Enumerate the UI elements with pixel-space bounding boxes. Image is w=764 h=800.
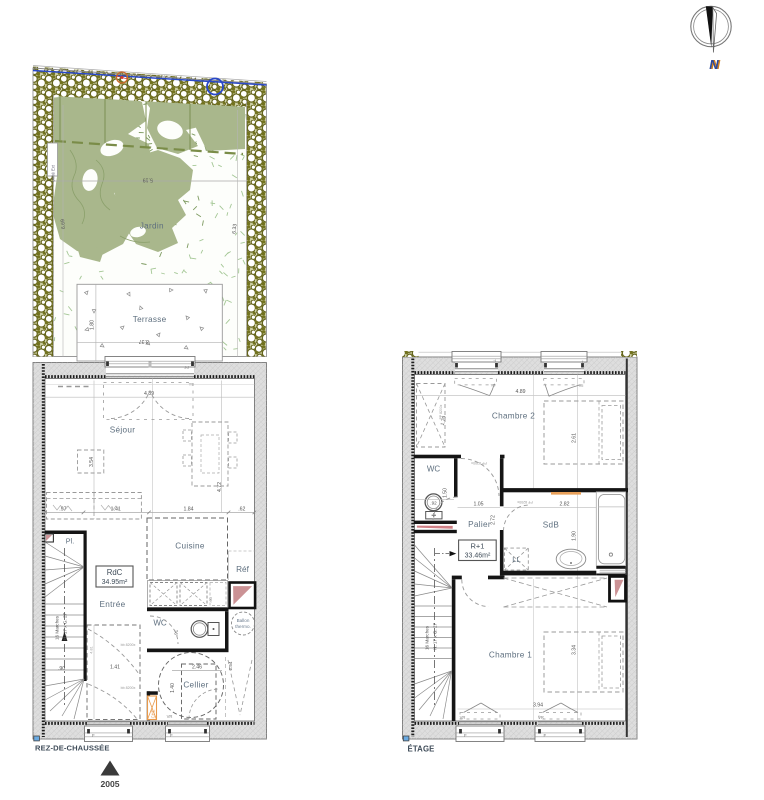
svg-text:Terrasse: Terrasse: [133, 315, 167, 324]
svg-text:6.69: 6.69: [60, 219, 67, 230]
svg-text:5.19: 5.19: [143, 177, 153, 183]
svg-text:1.80: 1.80: [90, 320, 96, 330]
svg-text:Entrée: Entrée: [100, 600, 126, 609]
svg-text:4.72: 4.72: [217, 482, 223, 492]
svg-text:thermo.: thermo.: [235, 624, 251, 629]
svg-text:WC: WC: [427, 465, 441, 474]
svg-text:2.46: 2.46: [192, 665, 202, 671]
svg-text:.90: .90: [58, 666, 65, 672]
svg-text:1.90: 1.90: [572, 531, 578, 541]
svg-text:ÉTAGE: ÉTAGE: [408, 745, 435, 754]
svg-text:1.40: 1.40: [170, 683, 176, 693]
svg-text:1.84: 1.84: [183, 507, 193, 513]
svg-text:PF: PF: [183, 365, 189, 370]
svg-text:Séjour: Séjour: [110, 426, 135, 435]
svg-text:2005: 2005: [100, 779, 119, 789]
svg-text:LL: LL: [512, 555, 520, 564]
svg-text:Palier: Palier: [468, 520, 491, 529]
svg-text:PP 8200x: PP 8200x: [471, 461, 487, 465]
svg-text:Cuisine: Cuisine: [175, 542, 205, 551]
svg-text:VR: VR: [167, 714, 173, 719]
svg-text:F: F: [464, 733, 467, 738]
svg-text:Pl.: Pl.: [66, 537, 74, 546]
svg-text:3.94: 3.94: [533, 703, 543, 709]
svg-text:Chambre 1: Chambre 1: [489, 651, 532, 660]
svg-text:1.41: 1.41: [110, 665, 120, 671]
svg-text:F: F: [170, 733, 173, 738]
svg-text:N: N: [709, 57, 719, 72]
svg-text:F: F: [493, 359, 496, 364]
svg-text:1.05: 1.05: [473, 501, 483, 507]
svg-text:16 Marches: 16 Marches: [55, 615, 60, 640]
svg-text:16 Marches: 16 Marches: [425, 625, 430, 650]
svg-text:34.95m²: 34.95m²: [102, 579, 128, 586]
svg-text:bb 8200x: bb 8200x: [121, 643, 136, 647]
svg-text:F: F: [92, 733, 95, 738]
svg-text:33.46m²: 33.46m²: [465, 553, 491, 560]
svg-text:REZ-DE-CHAUSSÉE: REZ-DE-CHAUSSÉE: [35, 744, 110, 753]
svg-text:4.89: 4.89: [515, 389, 525, 395]
svg-text:3.37: 3.37: [139, 338, 149, 344]
svg-text:1.41: 1.41: [111, 507, 121, 513]
svg-text:.62: .62: [238, 507, 245, 513]
svg-text:R+1: R+1: [471, 542, 485, 551]
svg-text:Réf: Réf: [236, 565, 249, 574]
svg-text:CHE: CHE: [151, 709, 156, 718]
svg-text:F: F: [580, 360, 583, 365]
svg-text:Cellier: Cellier: [183, 681, 208, 690]
svg-text:2.54: 2.54: [228, 661, 233, 670]
svg-text:H. 17 x G. 27: H. 17 x G. 27: [63, 612, 68, 640]
svg-text:PP 8200x: PP 8200x: [439, 404, 443, 419]
svg-text:Ballon: Ballon: [237, 618, 250, 623]
svg-text:6.33: 6.33: [231, 223, 238, 234]
svg-text:Unité Ext: Unité Ext: [51, 164, 56, 182]
svg-text:H. 17 x G. 27: H. 17 x G. 27: [433, 622, 438, 650]
svg-text:Chambre 2: Chambre 2: [492, 412, 535, 421]
svg-text:RdC: RdC: [107, 568, 123, 577]
svg-text:bb 8200x: bb 8200x: [121, 686, 136, 690]
svg-text:3.54: 3.54: [89, 457, 95, 467]
svg-text:.60: .60: [208, 596, 213, 602]
svg-text:Jardin: Jardin: [140, 222, 164, 231]
svg-text:.92: .92: [430, 500, 437, 505]
svg-text:SdB: SdB: [543, 521, 560, 530]
svg-text:F: F: [544, 733, 547, 738]
svg-text:2.61: 2.61: [572, 433, 578, 443]
svg-text:2.72: 2.72: [490, 515, 496, 525]
svg-text:2.82: 2.82: [559, 501, 569, 507]
svg-text:PF 8200x: PF 8200x: [517, 500, 533, 504]
svg-text:4.81: 4.81: [90, 646, 94, 653]
svg-text:1.50: 1.50: [443, 488, 449, 498]
svg-text:3.34: 3.34: [572, 645, 578, 655]
